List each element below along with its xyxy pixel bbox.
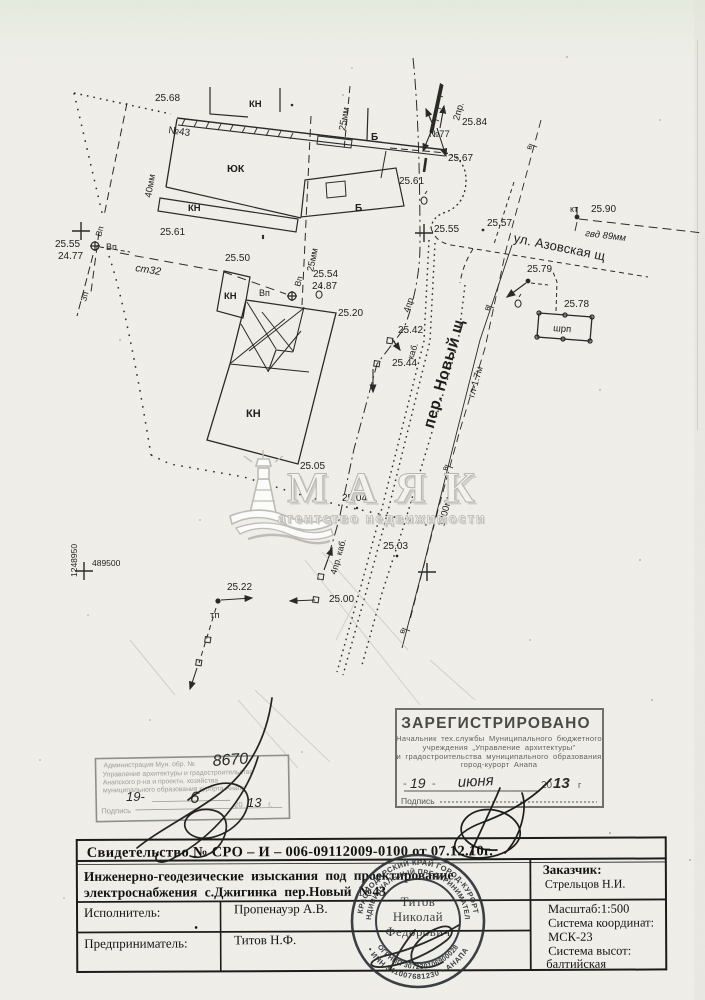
svg-text:Масштаб:1:500: Масштаб:1:500 <box>548 902 629 916</box>
svg-text:Вп: Вп <box>259 288 270 298</box>
svg-text:1248950: 1248950 <box>69 544 79 577</box>
svg-text:25.84: 25.84 <box>462 117 487 128</box>
svg-text:КН: КН <box>224 291 237 302</box>
svg-text:25.55: 25.55 <box>434 224 459 235</box>
svg-text:Подпись: Подпись <box>401 796 435 806</box>
svg-text:учреждения „Управление архит: учреждения „Управление архитектуры” <box>423 743 576 752</box>
svg-text:Пропенауэр А.В.: Пропенауэр А.В. <box>234 901 328 916</box>
svg-text:25.54: 25.54 <box>313 269 338 280</box>
svg-text:489500: 489500 <box>92 558 121 568</box>
svg-text:25.03: 25.03 <box>383 541 408 552</box>
svg-text:13: 13 <box>553 775 570 792</box>
svg-text:электроснабжения с.Джигинка: электроснабжения с.Джигинка пер.Новый №4… <box>84 884 386 900</box>
svg-text:кт: кт <box>570 204 578 214</box>
svg-text:МСК-23: МСК-23 <box>548 930 593 944</box>
svg-text:19: 19 <box>410 775 426 791</box>
svg-text:25.44: 25.44 <box>392 358 417 369</box>
svg-text:25.50: 25.50 <box>225 253 250 264</box>
svg-text:КН: КН <box>188 203 201 214</box>
svg-text:№77: №77 <box>429 129 450 140</box>
svg-text:-: - <box>403 778 407 790</box>
svg-text:Свидетельство № СРО – И – 006-: Свидетельство № СРО – И – 006-09112009-0… <box>87 843 493 861</box>
svg-text:шрп: шрп <box>553 323 572 335</box>
svg-text:25.22: 25.22 <box>227 582 252 593</box>
svg-text:25.00: 25.00 <box>329 594 354 605</box>
svg-text:МАЯК: МАЯК <box>287 465 493 512</box>
svg-text:25.78: 25.78 <box>564 299 589 310</box>
svg-text:балтийская: балтийская <box>546 957 606 971</box>
svg-text:Стрельцов Н.И.: Стрельцов Н.И. <box>545 877 626 891</box>
svg-text:25.68: 25.68 <box>155 93 180 104</box>
svg-text:ЮК: ЮК <box>227 163 245 175</box>
svg-text:25.57: 25.57 <box>487 218 512 229</box>
svg-text:ЗАРЕГИСТРИРОВАНО: ЗАРЕГИСТРИРОВАНО <box>401 715 591 732</box>
svg-text:20: 20 <box>541 780 553 791</box>
svg-text:КН: КН <box>249 99 262 110</box>
svg-text:-: - <box>432 778 436 790</box>
svg-text:25.61: 25.61 <box>399 176 424 187</box>
svg-text:25.67: 25.67 <box>448 153 473 164</box>
svg-text:13: 13 <box>247 795 262 810</box>
svg-text:25.42: 25.42 <box>398 325 423 336</box>
svg-text:Титов Н.Ф.: Титов Н.Ф. <box>234 932 296 947</box>
svg-text:24.87: 24.87 <box>312 281 337 292</box>
svg-text:тп: тп <box>210 610 220 621</box>
svg-text:25.55: 25.55 <box>55 239 80 250</box>
svg-text:Предприниматель:: Предприниматель: <box>84 936 188 951</box>
svg-text:Администрация Мун. обр. №: Администрация Мун. обр. № <box>103 760 194 770</box>
svg-text:Начальник тех.службы Муницип: Начальник тех.службы Муниципального бюдж… <box>396 734 602 743</box>
svg-text:24.77: 24.77 <box>58 251 83 262</box>
svg-text:Титов: Титов <box>401 895 436 909</box>
svg-text:город-курорт Анапа: город-курорт Анапа <box>461 760 538 769</box>
svg-text:Б: Б <box>355 203 362 214</box>
svg-text:8670: 8670 <box>212 751 249 770</box>
svg-text:25.61: 25.61 <box>160 227 185 238</box>
svg-text:агентство недвижимости: агентство недвижимости <box>278 511 486 526</box>
svg-text:Заказчик:: Заказчик: <box>543 862 602 877</box>
svg-text:КН: КН <box>246 408 261 420</box>
svg-text:Вп: Вп <box>106 242 117 252</box>
svg-text:Николай: Николай <box>393 910 443 924</box>
svg-text:г.: г. <box>268 800 272 809</box>
svg-text:19-: 19- <box>126 789 145 804</box>
svg-text:июня: июня <box>457 772 494 791</box>
svg-text:25.90: 25.90 <box>591 204 616 215</box>
svg-text:Исполнитель:: Исполнитель: <box>84 905 160 920</box>
svg-text:25.20: 25.20 <box>338 308 363 319</box>
svg-text:25.79: 25.79 <box>527 264 552 275</box>
svg-text:Система координат:: Система координат: <box>548 915 654 929</box>
svg-text:Подпись: Подпись <box>101 806 131 816</box>
svg-text:Б: Б <box>371 132 378 143</box>
